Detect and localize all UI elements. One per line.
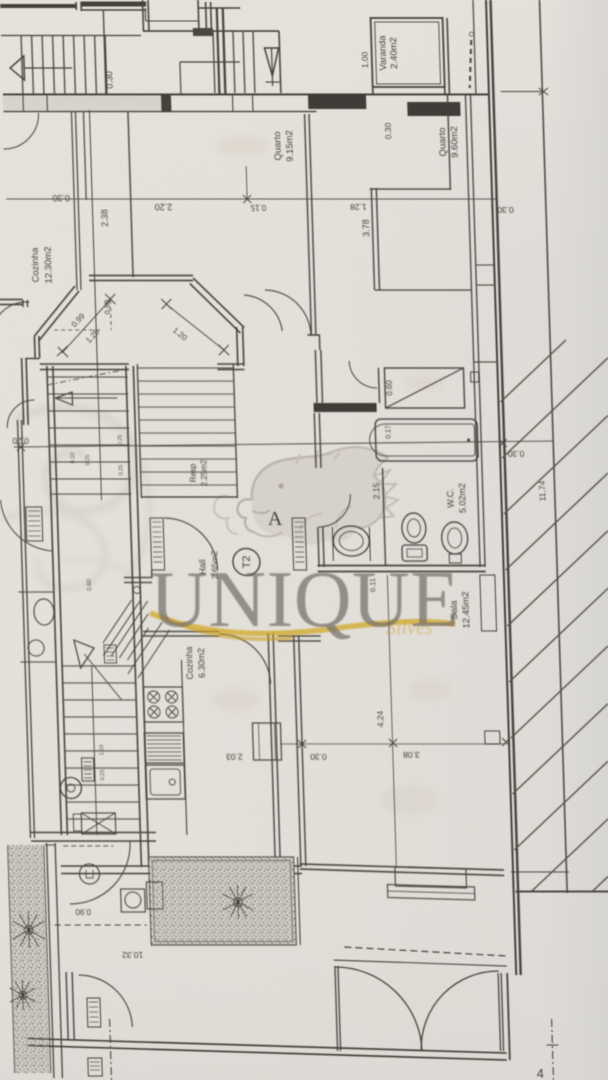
svg-text:0.30: 0.30 bbox=[104, 71, 115, 89]
svg-text:6.30m2: 6.30m2 bbox=[196, 648, 207, 678]
svg-text:2.38: 2.38 bbox=[99, 209, 110, 227]
svg-text:0.90: 0.90 bbox=[75, 907, 91, 916]
svg-text:0.30: 0.30 bbox=[507, 449, 524, 459]
svg-text:1.00: 1.00 bbox=[360, 51, 371, 68]
svg-text:0.17: 0.17 bbox=[385, 425, 392, 439]
svg-text:D: D bbox=[467, 31, 476, 37]
svg-text:12.30m2: 12.30m2 bbox=[43, 247, 55, 284]
svg-text:2.15: 2.15 bbox=[371, 482, 382, 499]
svg-text:2.03: 2.03 bbox=[226, 752, 243, 762]
svg-text:9.15m2: 9.15m2 bbox=[284, 130, 296, 162]
svg-text:UNIQUE: UNIQUE bbox=[150, 556, 460, 644]
svg-text:Cozinha: Cozinha bbox=[30, 247, 42, 283]
svg-text:1.28: 1.28 bbox=[350, 202, 367, 212]
svg-text:0.30: 0.30 bbox=[383, 122, 394, 139]
svg-text:0.30: 0.30 bbox=[497, 205, 514, 215]
svg-text:Quarto: Quarto bbox=[437, 127, 449, 156]
svg-text:2.20: 2.20 bbox=[154, 202, 172, 212]
svg-text:0.30: 0.30 bbox=[310, 752, 327, 762]
svg-text:0.60: 0.60 bbox=[385, 380, 394, 396]
svg-text:11.74: 11.74 bbox=[537, 480, 548, 501]
svg-text:Cozinha: Cozinha bbox=[184, 646, 195, 679]
svg-text:3.78: 3.78 bbox=[361, 219, 372, 237]
svg-text:10.32: 10.32 bbox=[122, 950, 144, 960]
svg-text:4.24: 4.24 bbox=[375, 710, 386, 727]
svg-text:12.45m2: 12.45m2 bbox=[460, 592, 472, 629]
svg-text:0.15: 0.15 bbox=[250, 203, 266, 212]
svg-text:9.60m2: 9.60m2 bbox=[449, 126, 461, 158]
svg-text:3.08: 3.08 bbox=[403, 750, 420, 760]
svg-text:0.25: 0.25 bbox=[117, 435, 123, 446]
svg-text:0.25: 0.25 bbox=[100, 770, 106, 781]
svg-text:0.25: 0.25 bbox=[118, 465, 124, 476]
svg-text:A: A bbox=[268, 508, 284, 530]
svg-text:0.10: 0.10 bbox=[70, 453, 76, 464]
svg-text:0.20: 0.20 bbox=[12, 436, 29, 446]
svg-text:Quarto: Quarto bbox=[272, 131, 284, 160]
svg-text:W.C.: W.C. bbox=[445, 488, 456, 507]
svg-text:2.40m2: 2.40m2 bbox=[388, 37, 400, 69]
svg-text:4: 4 bbox=[536, 1066, 544, 1080]
svg-text:0.30: 0.30 bbox=[52, 193, 70, 203]
svg-text:Resp: Resp bbox=[188, 463, 198, 482]
svg-text:2.25m2: 2.25m2 bbox=[199, 459, 209, 486]
svg-text:0.60: 0.60 bbox=[87, 579, 93, 591]
svg-text:5.02m2: 5.02m2 bbox=[457, 483, 468, 513]
svg-text:0.25: 0.25 bbox=[85, 455, 91, 466]
svg-text:1.10: 1.10 bbox=[99, 745, 105, 756]
